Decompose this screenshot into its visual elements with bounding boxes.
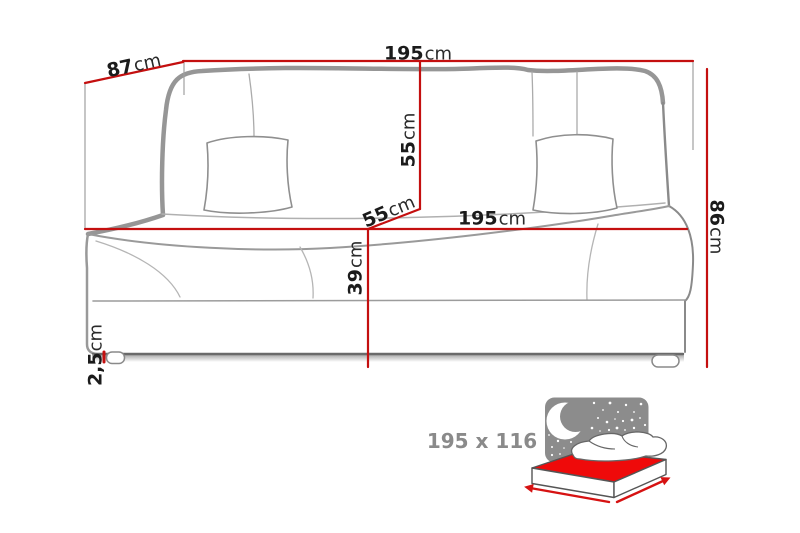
dim-unit: cm <box>401 113 419 140</box>
moon-cut <box>560 401 591 432</box>
dim-value: 195 <box>458 210 498 229</box>
dim-unit: cm <box>348 241 366 268</box>
sofa-base-seam <box>93 300 685 301</box>
dim-label-back-height: 55cm <box>400 113 419 168</box>
pillow-left <box>204 137 292 214</box>
dim-value: 195 <box>384 45 424 64</box>
dim-label-seat-width: 195cm <box>458 210 526 229</box>
sofa-seat-crease-mid <box>300 247 313 298</box>
dim-value: 86 <box>707 200 726 226</box>
dimension-diagram: 195cm 87cm 55cm 55cm 195cm 39cm 86cm 2,5… <box>0 0 800 533</box>
sofa-backrest-right-edge <box>663 103 669 206</box>
dim-value: 2,5 <box>87 352 106 386</box>
dim-unit: cm <box>499 211 526 229</box>
dim-label-leg-height: 2,5cm <box>87 324 106 386</box>
bed-arrow-width-head <box>524 484 534 493</box>
dim-unit: cm <box>707 227 725 254</box>
sofa-seat-crease-right <box>587 224 598 300</box>
dim-unit: cm <box>88 324 106 351</box>
dim-label-total-height: 86cm <box>707 200 726 255</box>
dim-value: 55 <box>400 141 419 167</box>
dim-unit: cm <box>425 46 452 64</box>
pillow-right <box>533 135 617 214</box>
dim-value: 39 <box>347 269 366 295</box>
sofa-backrest-seam-center <box>532 72 533 136</box>
diagram-canvas <box>0 0 800 533</box>
sleeping-area-label: 195 x 116 <box>427 431 537 451</box>
sofa-foot-left <box>107 352 125 364</box>
sofa-seat-crease-left <box>96 241 180 297</box>
sofa-backrest-seam-left <box>249 74 254 137</box>
sofa-bed-function-icon <box>524 398 670 503</box>
dim-label-seat-height: 39cm <box>347 241 366 296</box>
sofa-foot-right <box>652 355 679 367</box>
dim-label-top-width: 195cm <box>384 45 452 64</box>
